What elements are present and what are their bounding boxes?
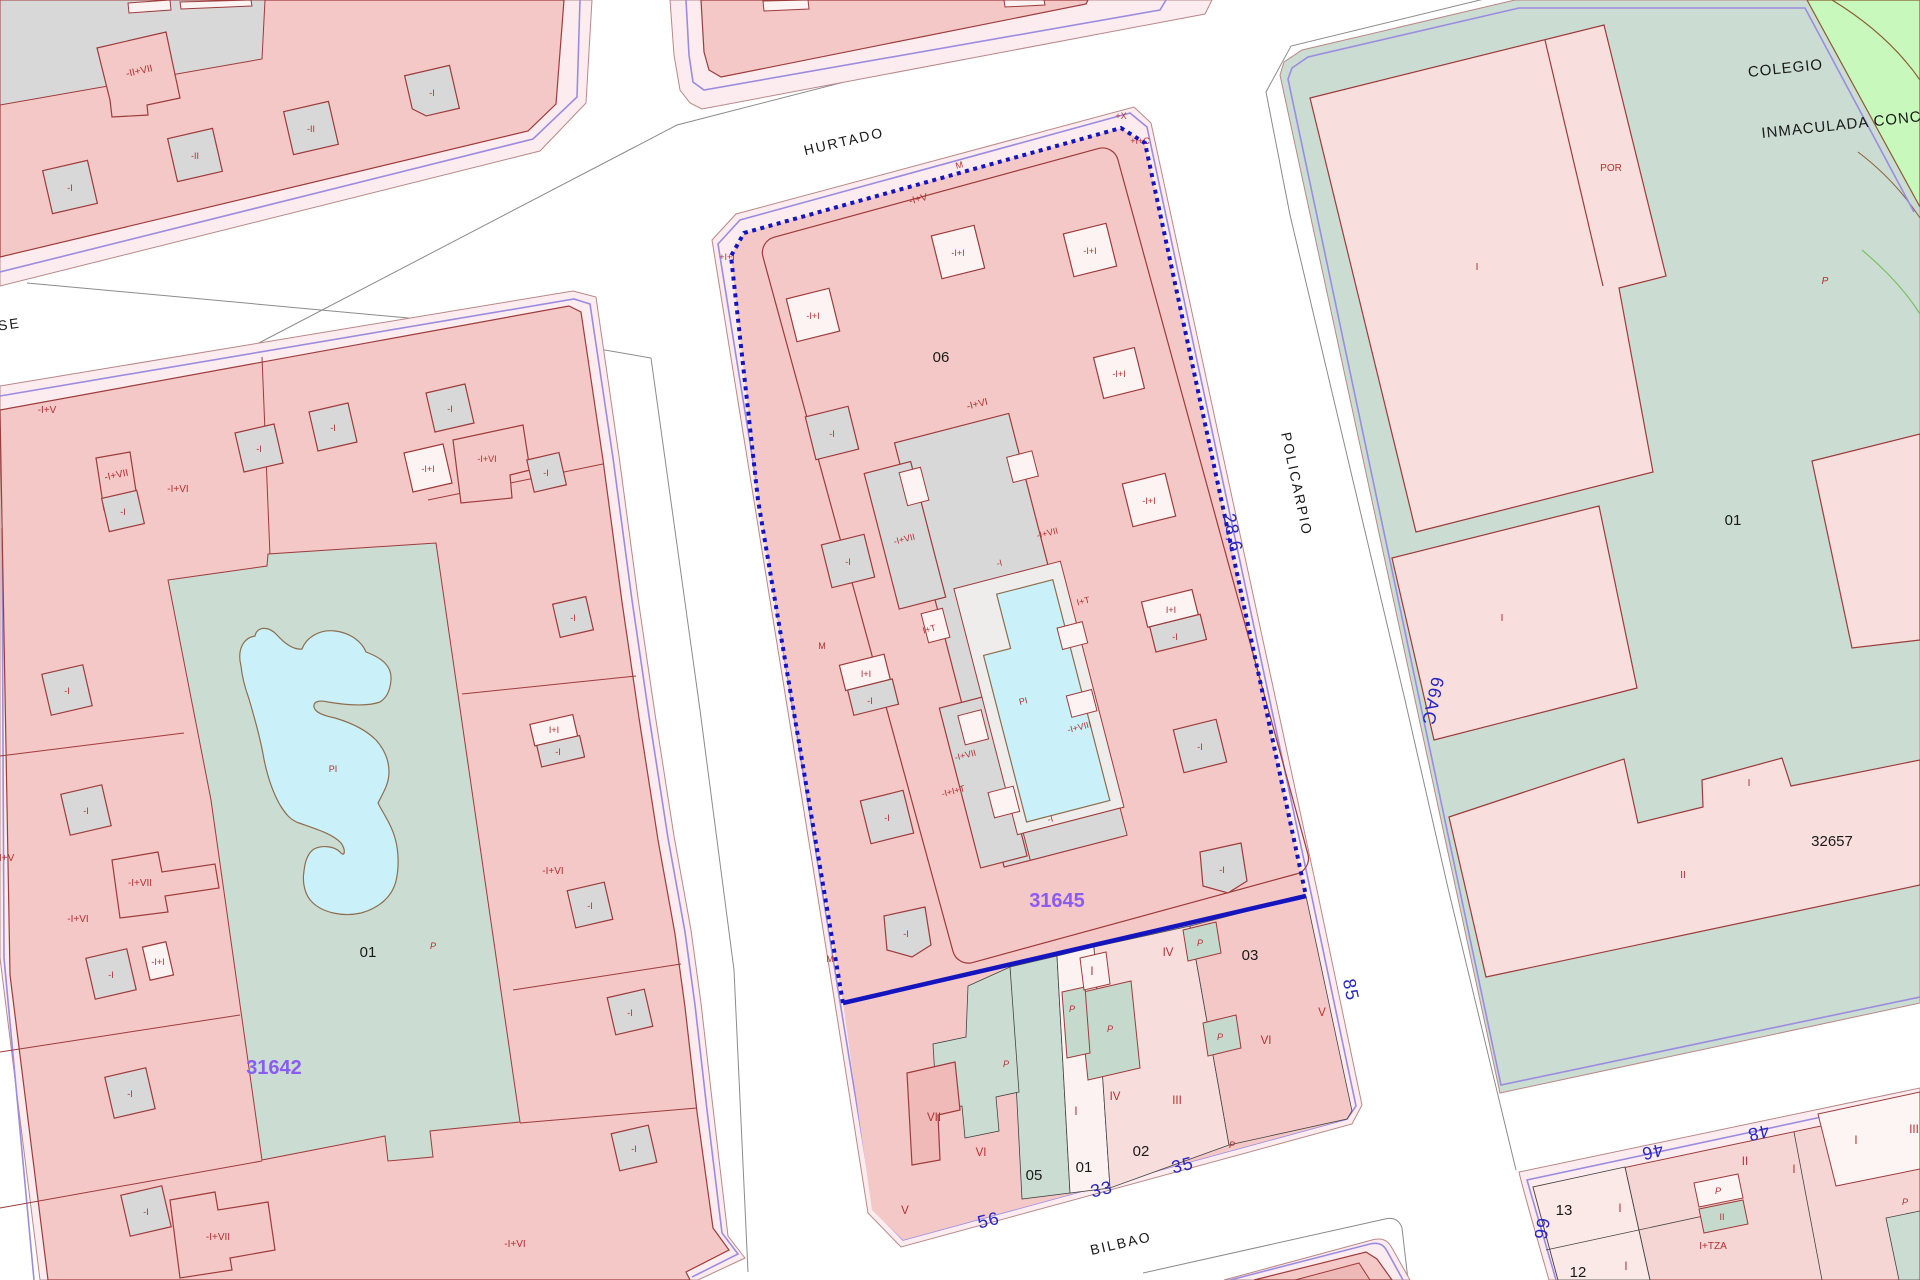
svg-text:-I: -I <box>256 444 262 454</box>
svg-text:I: I <box>1624 1261 1627 1273</box>
svg-text:M: M <box>818 641 826 651</box>
svg-text:01: 01 <box>360 944 377 961</box>
svg-text:I+TZA: I+TZA <box>1699 1241 1727 1252</box>
svg-text:-I: -I <box>143 1207 149 1217</box>
svg-text:I+I: I+I <box>861 669 871 679</box>
svg-text:-I: -I <box>1197 742 1203 752</box>
svg-text:-I: -I <box>903 929 909 939</box>
svg-text:I: I <box>1854 1135 1857 1147</box>
svg-text:POR: POR <box>1600 163 1622 174</box>
svg-text:-I: -I <box>543 468 549 478</box>
svg-text:P: P <box>1229 1140 1235 1150</box>
svg-text:32657: 32657 <box>1811 833 1853 850</box>
svg-text:-I: -I <box>884 813 890 823</box>
svg-text:-I: -I <box>631 1144 637 1154</box>
svg-text:-I: -I <box>570 613 576 623</box>
svg-text:-I: -I <box>867 696 873 706</box>
svg-text:I: I <box>1748 778 1751 789</box>
svg-text:31645: 31645 <box>1029 890 1085 912</box>
svg-text:-I+VI: -I+VI <box>67 914 88 925</box>
svg-text:-I: -I <box>120 507 126 517</box>
svg-text:P: P <box>1902 1197 1908 1207</box>
svg-text:SE: SE <box>0 315 22 334</box>
svg-text:+I+C: +I+C <box>1130 136 1150 146</box>
svg-text:-I: -I <box>587 901 593 911</box>
svg-text:-I+VII: -I+VII <box>128 878 152 889</box>
svg-text:III: III <box>1172 1095 1182 1107</box>
svg-text:P: P <box>1822 276 1829 287</box>
svg-text:+X: +X <box>1115 111 1126 121</box>
svg-text:-I+VI: -I+VI <box>504 1239 525 1250</box>
svg-text:-I: -I <box>429 88 435 98</box>
svg-text:III: III <box>1909 1124 1919 1136</box>
svg-text:-I+I: -I+I <box>1142 496 1155 506</box>
svg-text:IV: IV <box>1163 947 1174 959</box>
svg-text:05: 05 <box>1026 1167 1043 1184</box>
svg-text:P: P <box>1069 1004 1075 1014</box>
svg-text:II: II <box>1680 870 1686 881</box>
svg-text:IV: IV <box>1110 1091 1121 1103</box>
svg-text:03: 03 <box>1242 947 1259 964</box>
svg-text:P: P <box>1107 1024 1113 1034</box>
svg-text:-I: -I <box>67 183 73 193</box>
svg-text:P: P <box>1217 1032 1223 1042</box>
svg-text:P: P <box>430 941 436 951</box>
svg-text:-I: -I <box>555 747 561 757</box>
svg-text:01: 01 <box>1725 512 1742 529</box>
svg-text:-I+I: -I+I <box>151 957 164 967</box>
svg-text:-I: -I <box>108 970 114 980</box>
svg-text:-I: -I <box>829 429 835 439</box>
svg-text:I: I <box>1501 613 1504 624</box>
svg-text:-I+V: -I+V <box>0 853 15 864</box>
svg-text:VI: VI <box>976 1147 987 1159</box>
svg-text:-I+I: -I+I <box>806 311 819 321</box>
svg-text:-I+VI: -I+VI <box>477 454 496 464</box>
svg-text:-I: -I <box>845 557 851 567</box>
svg-text:-II: -II <box>191 151 199 161</box>
svg-text:I: I <box>1792 1164 1795 1176</box>
svg-text:-I+VI: -I+VI <box>542 866 563 877</box>
svg-text:P: P <box>1715 1186 1721 1196</box>
svg-text:06: 06 <box>933 349 950 366</box>
svg-text:VI: VI <box>1261 1035 1272 1047</box>
svg-text:P: P <box>1197 938 1203 948</box>
svg-text:-I+I: -I+I <box>1112 369 1125 379</box>
svg-text:V: V <box>901 1205 909 1217</box>
svg-text:-I: -I <box>330 423 336 433</box>
svg-text:-I: -I <box>64 686 70 696</box>
svg-text:I+I: I+I <box>549 725 559 735</box>
svg-text:-I: -I <box>83 806 89 816</box>
svg-text:V: V <box>1318 1007 1326 1019</box>
svg-text:-I+I: -I+I <box>1083 246 1096 256</box>
svg-text:PI: PI <box>329 764 338 774</box>
svg-text:I: I <box>1476 262 1479 273</box>
svg-text:02: 02 <box>1133 1143 1150 1160</box>
svg-text:I: I <box>1618 1203 1621 1215</box>
svg-text:01: 01 <box>1076 1159 1093 1176</box>
svg-text:II: II <box>1719 1212 1724 1222</box>
svg-text:-I: -I <box>1219 865 1225 875</box>
svg-text:-I+I: -I+I <box>421 464 434 474</box>
svg-text:-I+V: -I+V <box>38 405 57 416</box>
svg-text:II: II <box>1742 1156 1748 1168</box>
svg-text:I: I <box>1090 966 1093 978</box>
svg-text:M: M <box>826 954 834 964</box>
svg-text:P: P <box>1003 1059 1009 1069</box>
svg-text:-II: -II <box>307 124 315 134</box>
svg-text:-I: -I <box>627 1008 633 1018</box>
svg-text:66: 66 <box>1530 1216 1554 1241</box>
svg-text:I+I: I+I <box>1166 605 1176 615</box>
svg-text:VII: VII <box>927 1112 941 1124</box>
svg-text:-I: -I <box>1172 632 1178 642</box>
svg-text:-I: -I <box>127 1089 133 1099</box>
svg-text:-I+VI: -I+VI <box>167 484 188 495</box>
svg-text:-I+VII: -I+VII <box>206 1232 230 1243</box>
svg-text:12: 12 <box>1570 1264 1587 1280</box>
svg-text:31642: 31642 <box>246 1057 302 1079</box>
svg-text:I: I <box>1074 1106 1077 1118</box>
svg-text:-I: -I <box>447 404 453 414</box>
svg-text:-I+I: -I+I <box>951 248 964 258</box>
svg-text:13: 13 <box>1556 1202 1573 1219</box>
